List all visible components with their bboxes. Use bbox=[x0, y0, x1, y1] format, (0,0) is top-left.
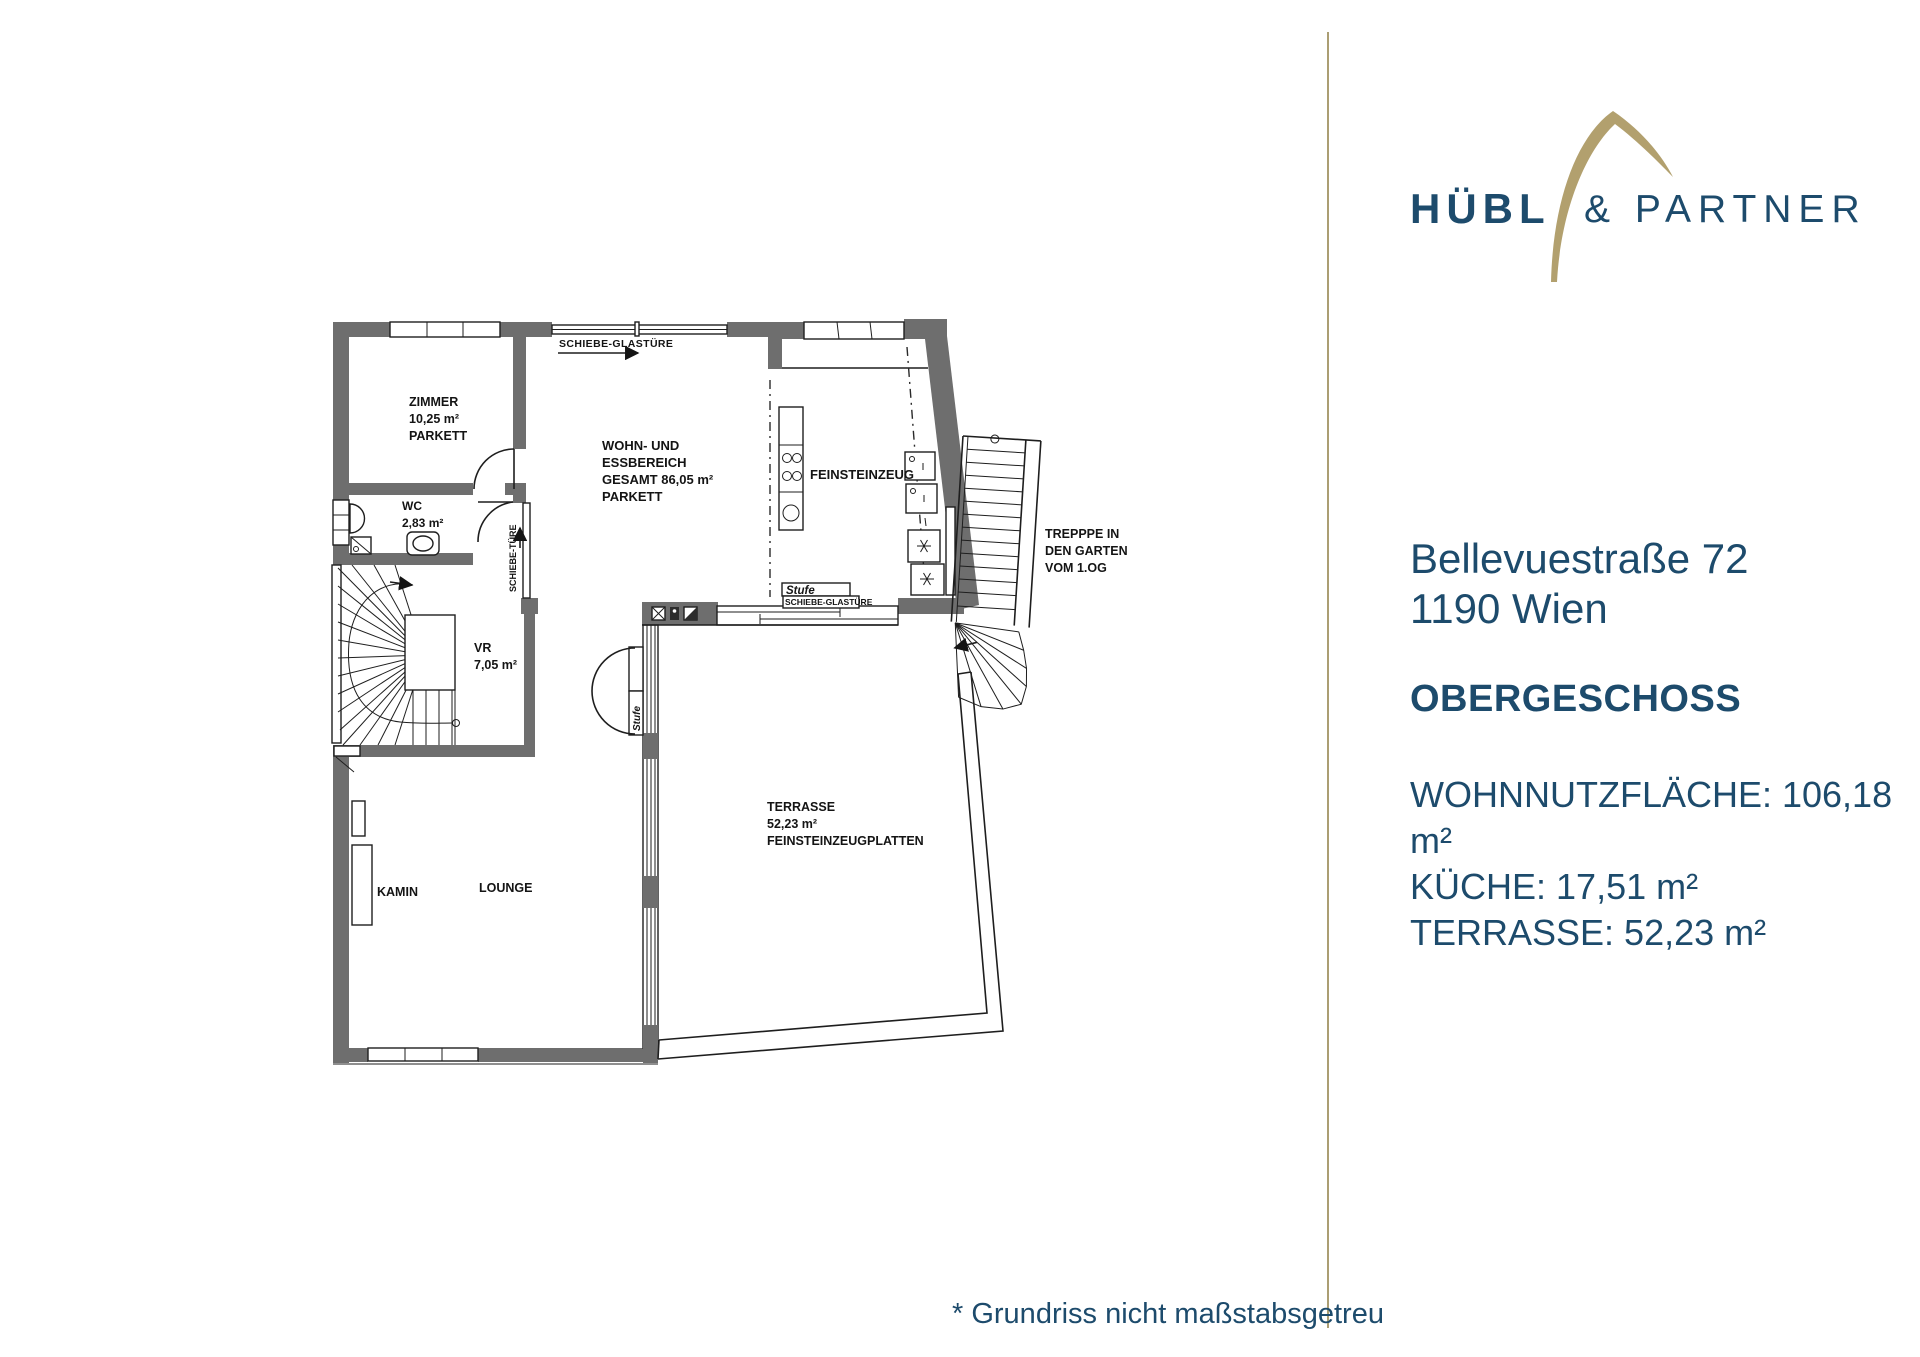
fireplace bbox=[352, 801, 372, 925]
spiral-stair bbox=[334, 565, 460, 772]
floor-title: OBERGESCHOSS bbox=[1410, 678, 1741, 721]
area-line-terrasse: TERRASSE: 52,23 m² bbox=[1410, 910, 1920, 956]
svg-text:7,05 m²: 7,05 m² bbox=[474, 658, 517, 672]
label-feinsteinzeug: FEINSTEINZEUG bbox=[810, 467, 914, 482]
area-line-wohnnutzflaeche: WOHNNUTZFLÄCHE: 106,18 m² bbox=[1410, 772, 1920, 864]
svg-text:2,83 m²: 2,83 m² bbox=[402, 516, 443, 530]
divider-line bbox=[1327, 32, 1329, 1328]
wall-symbols bbox=[652, 607, 697, 620]
svg-text:ESSBEREICH: ESSBEREICH bbox=[602, 455, 687, 470]
label-schiebe-glastuere-top: SCHIEBE-GLASTÜRE bbox=[559, 337, 673, 350]
area-line-kueche: KÜCHE: 17,51 m² bbox=[1410, 864, 1920, 910]
label-schiebe-tuere: SCHIEBE-TÜRE bbox=[508, 524, 518, 592]
svg-text:GESAMT 86,05 m²: GESAMT 86,05 m² bbox=[602, 472, 714, 487]
scale-footnote: * Grundriss nicht maßstabsgetreu bbox=[952, 1298, 1384, 1331]
svg-text:WOHN- UND: WOHN- UND bbox=[602, 438, 679, 453]
address-line2: 1190 Wien bbox=[1410, 584, 1749, 634]
svg-text:52,23 m²: 52,23 m² bbox=[767, 817, 817, 831]
address-line1: Bellevuestraße 72 bbox=[1410, 534, 1749, 584]
svg-text:VOM 1.OG: VOM 1.OG bbox=[1045, 561, 1107, 575]
kitchen-island bbox=[779, 407, 803, 530]
label-schiebe-glastuere-bottom: SCHIEBE-GLASTÜRE bbox=[785, 597, 873, 607]
svg-text:TERRASSE: TERRASSE bbox=[767, 800, 835, 814]
label-kamin: KAMIN bbox=[377, 885, 418, 899]
property-address: Bellevuestraße 72 1190 Wien bbox=[1410, 534, 1749, 634]
area-summary: WOHNNUTZFLÄCHE: 106,18 m² KÜCHE: 17,51 m… bbox=[1410, 772, 1920, 956]
label-lounge: LOUNGE bbox=[479, 881, 532, 895]
brand-word-primary: HÜBL bbox=[1410, 185, 1551, 233]
label-stufe-door: Stufe bbox=[632, 706, 643, 731]
svg-text:PARKETT: PARKETT bbox=[602, 489, 662, 504]
svg-text:10,25 m²: 10,25 m² bbox=[409, 412, 459, 426]
svg-text:WC: WC bbox=[402, 499, 422, 513]
brand-word-secondary: & PARTNER bbox=[1584, 188, 1867, 232]
svg-text:FEINSTEINZEUGPLATTEN: FEINSTEINZEUGPLATTEN bbox=[767, 834, 924, 848]
svg-text:VR: VR bbox=[474, 641, 491, 655]
svg-text:TREPPPE IN: TREPPPE IN bbox=[1045, 527, 1119, 541]
terrace-parapet bbox=[658, 672, 1003, 1059]
floor-plan: SCHIEBE-GLASTÜRE ZIMMER 10,25 m² PARKETT… bbox=[0, 0, 1150, 1357]
label-stufe-kitchen: Stufe bbox=[786, 585, 815, 597]
svg-text:PARKETT: PARKETT bbox=[409, 429, 467, 443]
svg-text:DEN GARTEN: DEN GARTEN bbox=[1045, 544, 1128, 558]
svg-text:ZIMMER: ZIMMER bbox=[409, 395, 458, 409]
